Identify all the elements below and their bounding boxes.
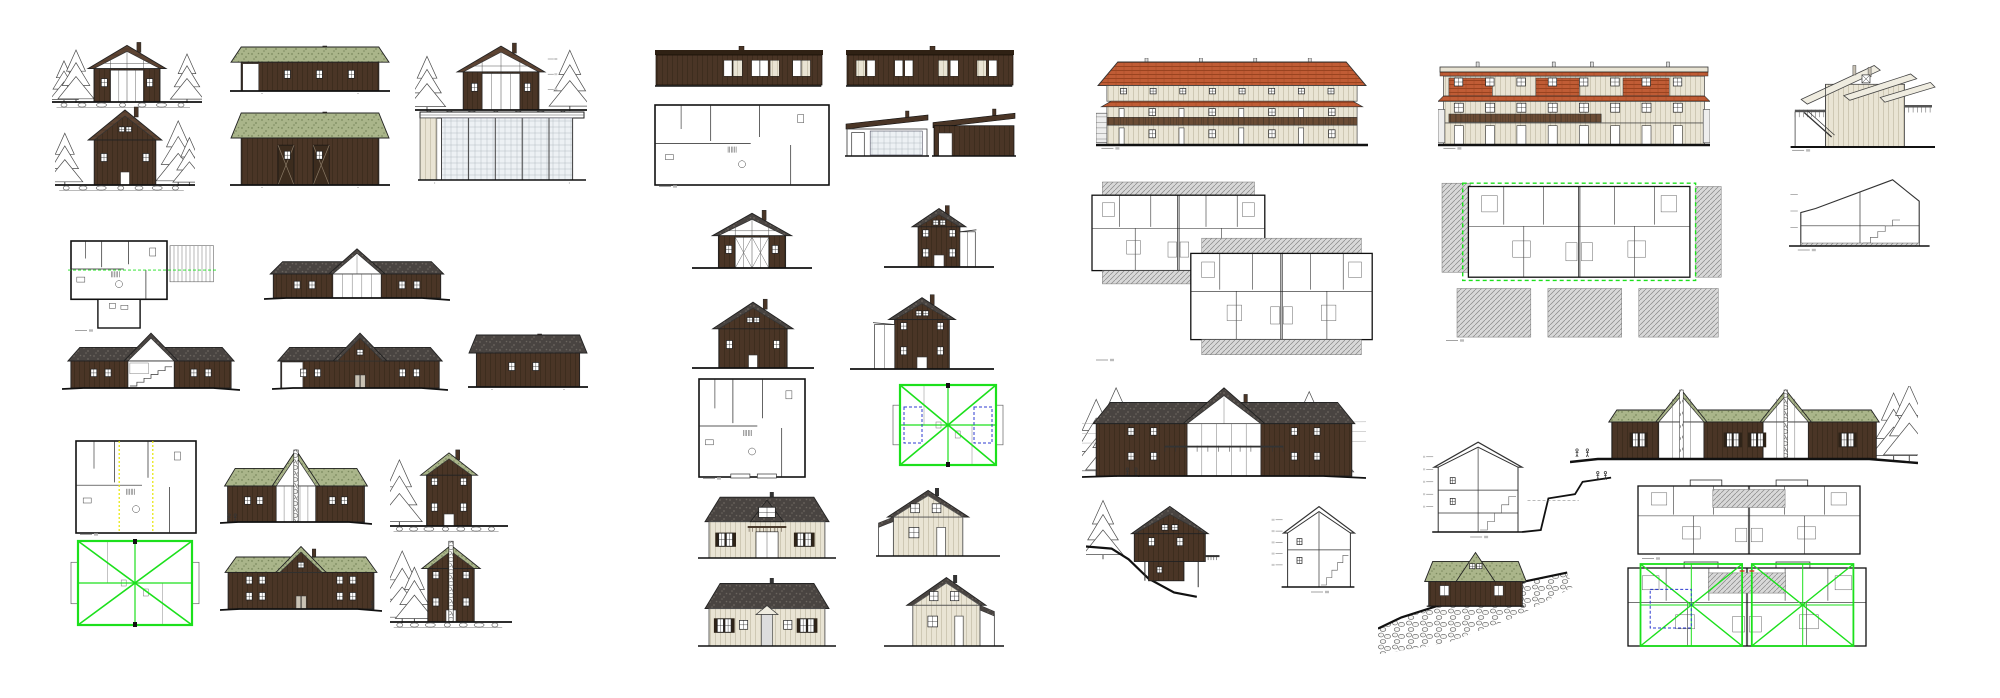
cabin-b-front-elevation <box>55 103 195 191</box>
chalet-a-hillside-elevation-svg <box>390 446 508 532</box>
cabin-c-upper-floor-plan-highlighted-svg <box>888 380 1008 470</box>
chalet-b-hillside-elevation-svg <box>1086 493 1228 600</box>
rowhouse-front-elevation-svg <box>1096 58 1368 150</box>
cabin-d-stone-slope-elevation <box>1378 548 1573 660</box>
chalet-b-section <box>1270 501 1368 595</box>
chalet-b-hillside-elevation <box>1086 493 1228 600</box>
cabin-c-end-elevation-svg <box>884 203 994 273</box>
modern-cabin-rear-elevation-svg <box>846 46 1014 88</box>
cabin-c-front-elevation-svg <box>692 208 812 274</box>
duplex-lodge-roof-plan-highlighted-svg <box>1626 560 1868 652</box>
rowhouse-floor-plans <box>1090 180 1378 362</box>
annex-glass-elevation <box>845 110 929 160</box>
lodge-a-rear-elevation <box>272 330 448 392</box>
cabin-a-front-elevation-annotated-svg <box>415 40 587 116</box>
chalet-b-front-elevation-svg <box>1082 383 1366 480</box>
lodge-a-rear-elevation-svg <box>272 330 448 392</box>
modern-cabin-floor-plan-svg <box>652 102 832 188</box>
chalet-a-front-elevation-svg <box>220 446 372 526</box>
house-a-front-elevation <box>698 490 836 562</box>
lofthouse-elevation-svg <box>1786 58 1938 152</box>
cabin-c-ground-floor-plan <box>696 376 808 480</box>
lofthouse-section <box>1786 170 1934 252</box>
chalet-a-roof-plan-highlighted-svg <box>66 536 204 630</box>
garage-side-elevation-svg <box>468 332 588 392</box>
cabin-c-front-elevation <box>692 208 812 274</box>
rowhouse-floor-plan-highlighted-svg <box>1440 180 1724 342</box>
rowhouse-rear-elevation <box>1438 60 1710 150</box>
house-a-end-elevation-2 <box>884 573 1004 650</box>
chalet-b-front-elevation <box>1082 383 1366 480</box>
drawing-sheet <box>0 0 2000 698</box>
cabin-c-end-elevation <box>884 203 994 273</box>
house-a-end-elevation-svg <box>876 486 1000 560</box>
cabin-c-end-elevation-2-svg <box>850 291 994 375</box>
lodge-a-section-elevation-svg <box>62 330 240 392</box>
cabin-a-front-elevation <box>52 40 202 108</box>
cabin-c-rear-elevation <box>692 296 814 374</box>
house-a-front-elevation-svg <box>698 490 836 562</box>
cabin-b-side-elevation-svg <box>230 110 390 190</box>
garage-side-elevation <box>468 332 588 392</box>
lofthouse-section-svg <box>1786 170 1934 252</box>
cabin-a-front-elevation-svg <box>52 40 202 108</box>
cabin-b-front-elevation-svg <box>55 103 195 191</box>
chalet-a-rear-elevation <box>220 543 382 613</box>
house-a-end-elevation <box>876 486 1000 560</box>
lodge-a-front-elevation <box>264 246 450 302</box>
chalet-a-hillside-rear-elevation <box>390 538 512 628</box>
lofthouse-elevation <box>1786 58 1938 152</box>
carport-glass-elevation-svg <box>418 106 586 186</box>
cabin-c-rear-elevation-svg <box>692 296 814 374</box>
chalet-b-section-svg <box>1270 501 1368 595</box>
lodge-a-section-elevation <box>62 330 240 392</box>
rowhouse-floor-plan-highlighted <box>1440 180 1724 342</box>
rowhouse-rear-elevation-svg <box>1438 60 1710 150</box>
cabin-b-side-elevation <box>230 110 390 190</box>
house-a-rear-elevation-svg <box>698 576 836 650</box>
cabin-a-side-elevation <box>230 44 390 96</box>
annex-side-elevation-svg <box>932 108 1016 160</box>
house-a-end-elevation-2-svg <box>884 573 1004 650</box>
chalet-a-floor-plan <box>73 438 199 536</box>
cabin-a-front-elevation-annotated <box>415 40 587 116</box>
annex-glass-elevation-svg <box>845 110 929 160</box>
modern-cabin-front-elevation <box>655 46 823 88</box>
cabin-c-end-elevation-2 <box>850 291 994 375</box>
chalet-a-hillside-elevation <box>390 446 508 532</box>
modern-cabin-rear-elevation <box>846 46 1014 88</box>
chalet-a-rear-elevation-svg <box>220 543 382 613</box>
house-a-rear-elevation <box>698 576 836 650</box>
chalet-a-hillside-rear-elevation-svg <box>390 538 512 628</box>
cabin-c-ground-floor-plan-svg <box>696 376 808 480</box>
duplex-lodge-floor-plan <box>1636 478 1862 560</box>
duplex-lodge-front-elevation-svg <box>1570 386 1918 466</box>
duplex-lodge-roof-plan-highlighted <box>1626 560 1868 652</box>
duplex-lodge-floor-plan-svg <box>1636 478 1862 560</box>
annex-side-elevation <box>932 108 1016 160</box>
cabin-a-floor-plan <box>68 238 218 332</box>
lodge-a-front-elevation-svg <box>264 246 450 302</box>
cabin-d-stone-slope-elevation-svg <box>1378 548 1573 660</box>
modern-cabin-floor-plan <box>652 102 832 188</box>
rowhouse-front-elevation <box>1096 58 1368 150</box>
chalet-a-floor-plan-svg <box>73 438 199 536</box>
cabin-a-floor-plan-svg <box>68 238 218 332</box>
chalet-a-roof-plan-highlighted <box>66 536 204 630</box>
cabin-a-side-elevation-svg <box>230 44 390 96</box>
chalet-a-front-elevation <box>220 446 372 526</box>
modern-cabin-front-elevation-svg <box>655 46 823 88</box>
duplex-lodge-front-elevation <box>1570 386 1918 466</box>
carport-glass-elevation <box>418 106 586 186</box>
cabin-c-upper-floor-plan-highlighted <box>888 380 1008 470</box>
rowhouse-floor-plans-svg <box>1090 180 1378 362</box>
